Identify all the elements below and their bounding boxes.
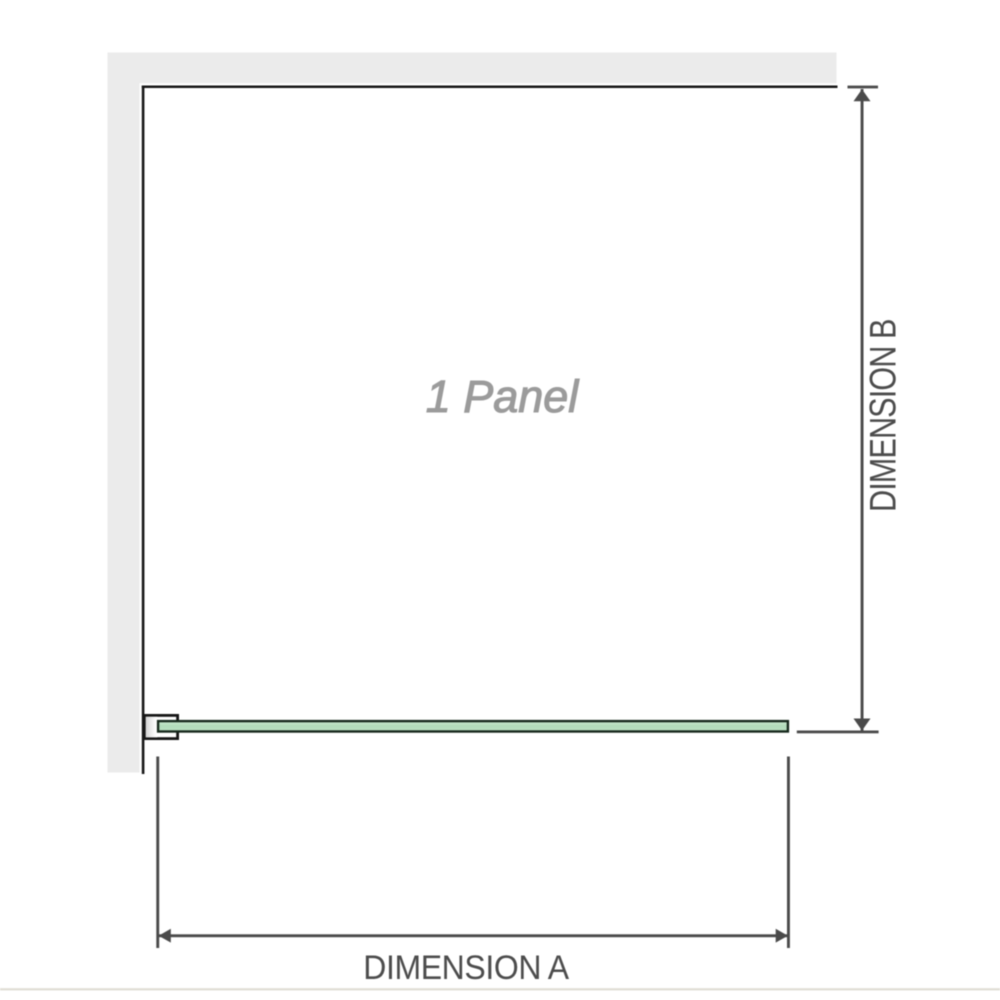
svg-text:DIMENSION B: DIMENSION B	[863, 319, 904, 512]
svg-text:DIMENSION A: DIMENSION A	[363, 949, 570, 987]
svg-text:1 Panel: 1 Panel	[426, 371, 581, 422]
